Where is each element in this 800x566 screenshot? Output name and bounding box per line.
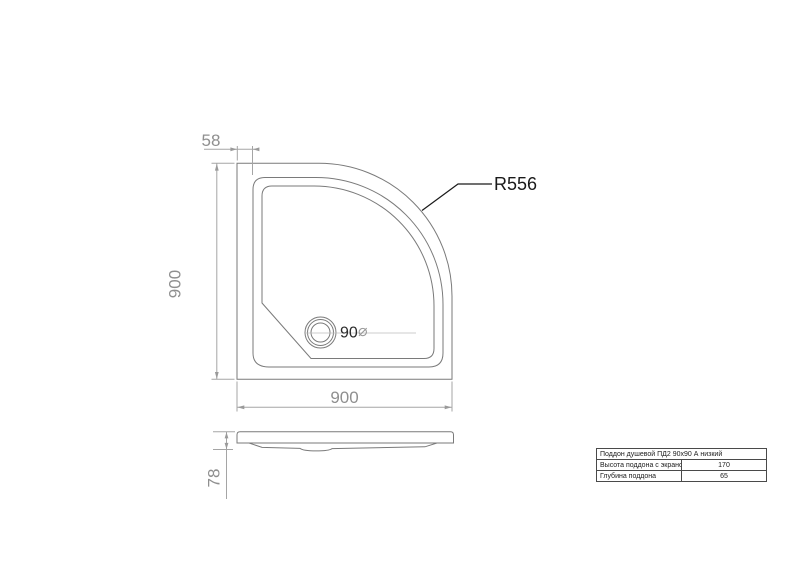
top-view-outer-contour [237,163,452,379]
dim-78-arrow-bottom [225,443,229,449]
side-view-underside [249,443,437,451]
spec-row-depth-value: 65 [682,471,767,482]
drain-outer-ring [305,317,336,348]
dim-v900-arrow-bottom [215,372,219,379]
dim-58-label: 58 [202,131,221,150]
dim-side-78 [213,432,235,499]
dim-v900-label: 900 [166,270,185,298]
spec-table: Поддон душевой ПД2 90х90 А низкий Высота… [596,448,767,482]
drain-dim-label: 90 [340,325,358,342]
dim-v900-arrow-top [215,164,219,171]
spec-row-depth-label: Глубина поддона [597,471,682,482]
dim-78-arrow-top [225,432,229,438]
dim-height-900 [212,163,235,379]
drain-inner-ring [311,323,330,342]
spec-table-title-row: Поддон душевой ПД2 90х90 А низкий [597,449,767,460]
dim-b900-label: 900 [330,388,358,407]
spec-row-height-value: 170 [682,460,767,471]
spec-table-title: Поддон душевой ПД2 90х90 А низкий [597,449,767,460]
dim-78-label: 78 [205,469,224,488]
dim-b900-arrow-right [445,405,452,409]
dim-b900-arrow-left [237,405,244,409]
drawing-sheet: 58 900 900 78 R556 90 [0,0,800,566]
radius-leader-line [422,184,492,211]
spec-table-row-depth: Глубина поддона 65 [597,471,767,482]
dim-58-arrow-right [253,147,260,151]
side-view-body [237,432,454,443]
spec-table-row-height: Высота поддона с экраном 170 [597,460,767,471]
dim-58-arrow-left [230,147,237,151]
diameter-symbol: ⌀ [358,323,368,340]
radius-label: R556 [494,174,537,194]
spec-row-height-label: Высота поддона с экраном [597,460,682,471]
